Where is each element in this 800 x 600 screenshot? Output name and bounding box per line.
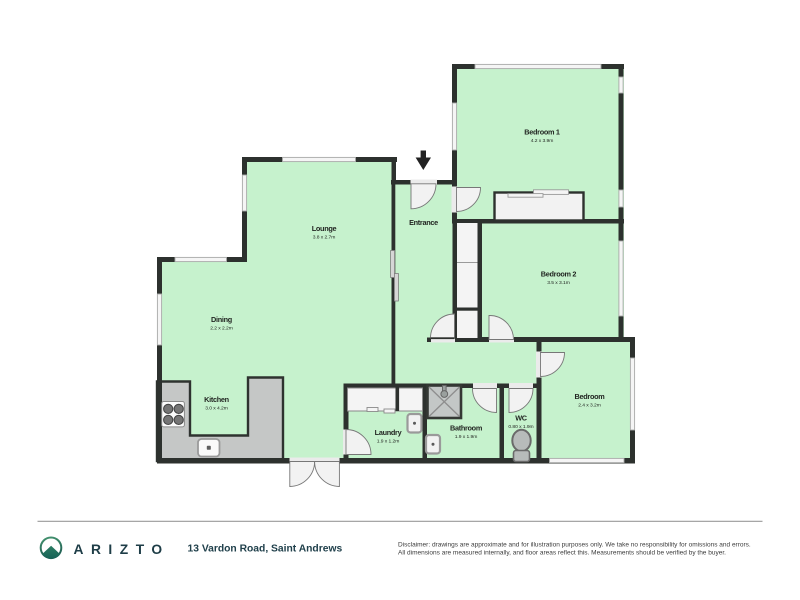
svg-text:Lounge: Lounge xyxy=(312,224,337,233)
svg-text:2.2 x 2.2m: 2.2 x 2.2m xyxy=(210,326,233,332)
svg-text:0.80 x 1.9m: 0.80 x 1.9m xyxy=(508,424,533,430)
svg-text:Bedroom: Bedroom xyxy=(575,392,606,401)
svg-text:3.8 x 2.7m: 3.8 x 2.7m xyxy=(313,235,336,241)
svg-text:Bathroom: Bathroom xyxy=(450,424,483,433)
svg-text:Bedroom 2: Bedroom 2 xyxy=(541,270,577,279)
svg-text:Entrance: Entrance xyxy=(409,218,438,227)
svg-text:Bedroom 1: Bedroom 1 xyxy=(524,128,560,137)
svg-text:Dining: Dining xyxy=(211,315,232,324)
svg-text:3.5 x 3.1m: 3.5 x 3.1m xyxy=(547,280,570,286)
svg-text:3.0 x 4.2m: 3.0 x 4.2m xyxy=(205,406,228,412)
svg-text:1.9 x 1.9m: 1.9 x 1.9m xyxy=(455,434,478,440)
svg-text:Kitchen: Kitchen xyxy=(204,395,229,404)
svg-text:4.2 x 3.9m: 4.2 x 3.9m xyxy=(531,138,554,144)
svg-text:Laundry: Laundry xyxy=(375,428,403,437)
svg-text:1.9 x 1.2m: 1.9 x 1.2m xyxy=(377,439,400,445)
svg-text:13 Vardon Road, Saint Andrews: 13 Vardon Road, Saint Andrews xyxy=(188,544,343,555)
svg-text:WC: WC xyxy=(515,414,528,423)
svg-text:ARIZTO: ARIZTO xyxy=(74,542,170,557)
svg-text:2.4 x 3.2m: 2.4 x 3.2m xyxy=(578,403,601,409)
svg-text:Disclaimer: drawings are appro: Disclaimer: drawings are approximate and… xyxy=(398,542,751,549)
svg-text:All dimensions are measured in: All dimensions are measured internally, … xyxy=(398,550,726,557)
